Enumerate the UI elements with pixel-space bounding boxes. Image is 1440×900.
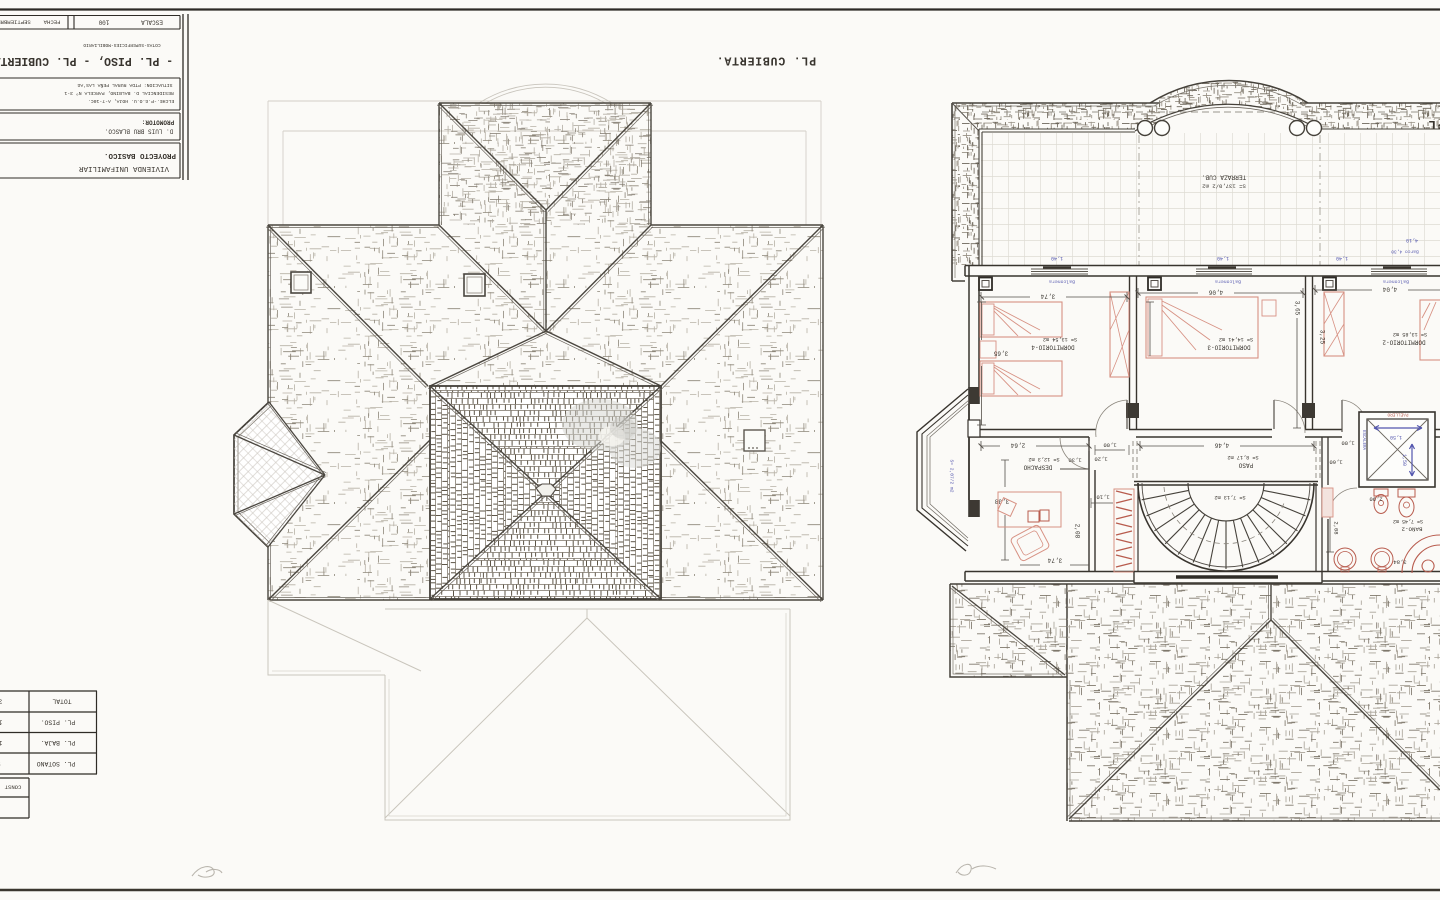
- svg-text:1,40: 1,40: [1217, 255, 1229, 261]
- svg-text:4,46: 4,46: [1214, 442, 1229, 449]
- svg-text:PL. BAJA.: PL. BAJA.: [41, 739, 76, 746]
- svg-text:S= 7,45 m2: S= 7,45 m2: [1393, 518, 1423, 524]
- svg-text:ELCHE.-P.G.O.U. HOJA, A-7-10C.: ELCHE.-P.G.O.U. HOJA, A-7-10C.: [88, 98, 174, 104]
- svg-text:PL. SOTANO: PL. SOTANO: [37, 760, 76, 767]
- svg-text:1,50: 1,50: [1401, 454, 1407, 466]
- svg-text:- PL. PISO, - PL. CUBIERTA.: - PL. PISO, - PL. CUBIERTA.: [0, 54, 173, 67]
- svg-text:DORMITORIO-2: DORMITORIO-2: [1382, 339, 1426, 346]
- svg-text:1,40: 1,40: [1336, 255, 1348, 261]
- svg-text:385: 385: [0, 698, 2, 705]
- svg-text:1,60: 1,60: [1329, 459, 1342, 466]
- svg-text:1,10: 1,10: [1096, 494, 1109, 501]
- svg-text:CONST: CONST: [4, 784, 21, 791]
- svg-text:S= 7,13 m2: S= 7,13 m2: [1214, 494, 1245, 500]
- svg-text:Balconera: Balconera: [1049, 279, 1075, 285]
- svg-text:1,30: 1,30: [1068, 457, 1081, 464]
- svg-text:2,08: 2,08: [1074, 524, 1081, 539]
- svg-text:PAELLERO: PAELLERO: [1387, 412, 1408, 417]
- svg-text:S= 14,41 m2: S= 14,41 m2: [1219, 336, 1253, 342]
- svg-text:PL. CUBIERTA.: PL. CUBIERTA.: [716, 54, 816, 67]
- svg-text:3,74: 3,74: [1040, 293, 1055, 300]
- svg-text:DESPACHO: DESPACHO: [1023, 464, 1052, 471]
- svg-text:PL. PISO.: PL. PISO.: [41, 719, 76, 726]
- svg-text:S= 13,85 m2: S= 13,85 m2: [1393, 331, 1427, 337]
- svg-text:PROYECTO BASICO.: PROYECTO BASICO.: [104, 151, 176, 159]
- svg-text:SEPTIEMBRE: SEPTIEMBRE: [0, 19, 31, 26]
- svg-text:90: 90: [0, 760, 1, 767]
- svg-text:D. LUIS BRU BLASCO.: D. LUIS BRU BLASCO.: [105, 128, 173, 135]
- svg-text:168: 168: [0, 739, 2, 746]
- svg-text:ESCALA: ESCALA: [141, 19, 163, 26]
- svg-text:1,00: 1,00: [1341, 440, 1354, 447]
- svg-text:Barco 4,30: Barco 4,30: [1391, 249, 1419, 255]
- svg-text:DORMITORIO-4: DORMITORIO-4: [1031, 344, 1075, 351]
- svg-text:S= 2,07/2 m2: S= 2,07/2 m2: [949, 459, 955, 492]
- svg-text:2,90: 2,90: [1369, 496, 1382, 503]
- svg-text:127: 127: [0, 719, 2, 726]
- svg-text:FECHA: FECHA: [43, 19, 60, 26]
- svg-text:SITUACION: PTDA RURAL PEÑA LA: SITUACION: PTDA RURAL PEÑA LAS'AG: [77, 82, 172, 89]
- svg-text:3,65: 3,65: [1294, 301, 1301, 316]
- svg-text:TERRAZA CUB.: TERRAZA CUB.: [1202, 174, 1247, 181]
- svg-text:4,10: 4,10: [1406, 237, 1418, 243]
- svg-text:2,08: 2,08: [1333, 521, 1340, 534]
- svg-text:S= 12,3 m2: S= 12,3 m2: [1028, 456, 1059, 462]
- svg-text:S= 8,17 m2: S= 8,17 m2: [1227, 454, 1258, 460]
- svg-text:3,65: 3,65: [993, 350, 1008, 357]
- svg-text:3,84: 3,84: [1393, 559, 1407, 566]
- svg-text:PROMOTOR:: PROMOTOR:: [142, 119, 174, 126]
- svg-text:3,74: 3,74: [1047, 557, 1062, 564]
- svg-text:1,40: 1,40: [1051, 255, 1063, 261]
- svg-text:BAÑO-2: BAÑO-2: [1401, 526, 1422, 533]
- svg-text:PASO: PASO: [1238, 462, 1253, 469]
- svg-text:100: 100: [98, 19, 109, 26]
- svg-text:ESCALERA: ESCALERA: [1361, 430, 1365, 451]
- svg-text:Balconera: Balconera: [1215, 279, 1241, 285]
- svg-text:DORMITORIO-3: DORMITORIO-3: [1207, 344, 1251, 351]
- svg-text:RESIDENCIAL D. BALBINO, PARCEL: RESIDENCIAL D. BALBINO, PARCELA Nº 3-1: [64, 90, 174, 96]
- svg-text:4,04: 4,04: [1382, 286, 1397, 293]
- svg-text:TOTAL: TOTAL: [52, 698, 71, 705]
- svg-text:4,06: 4,06: [1208, 289, 1223, 296]
- svg-text:1,00: 1,00: [1103, 442, 1116, 449]
- svg-text:COTAS-SUPERFICIES-MOBILIARIO: COTAS-SUPERFICIES-MOBILIARIO: [83, 42, 160, 48]
- svg-text:3,25: 3,25: [1319, 330, 1326, 345]
- svg-text:VIVIENDA UNIFAMILIAR: VIVIENDA UNIFAMILIAR: [78, 164, 169, 172]
- svg-text:1,50: 1,50: [1390, 434, 1402, 440]
- svg-text:S= 13,54 m2: S= 13,54 m2: [1043, 336, 1077, 342]
- svg-text:2,64: 2,64: [1010, 442, 1025, 449]
- svg-text:S= 137,0/2 m2: S= 137,0/2 m2: [1202, 183, 1246, 190]
- svg-text:Balconera: Balconera: [1383, 279, 1409, 285]
- svg-text:1,20: 1,20: [1094, 456, 1107, 463]
